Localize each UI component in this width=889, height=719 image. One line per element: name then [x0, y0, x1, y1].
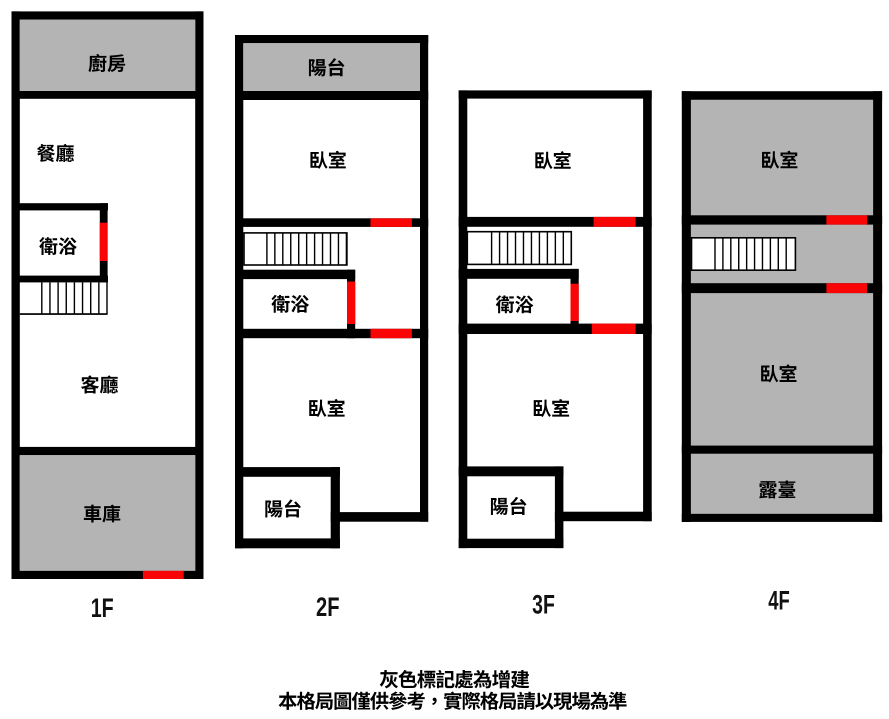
svg-text:4F: 4F [768, 586, 790, 616]
svg-text:3F: 3F [532, 590, 555, 620]
svg-text:2F: 2F [316, 592, 340, 622]
svg-text:1F: 1F [91, 593, 114, 623]
